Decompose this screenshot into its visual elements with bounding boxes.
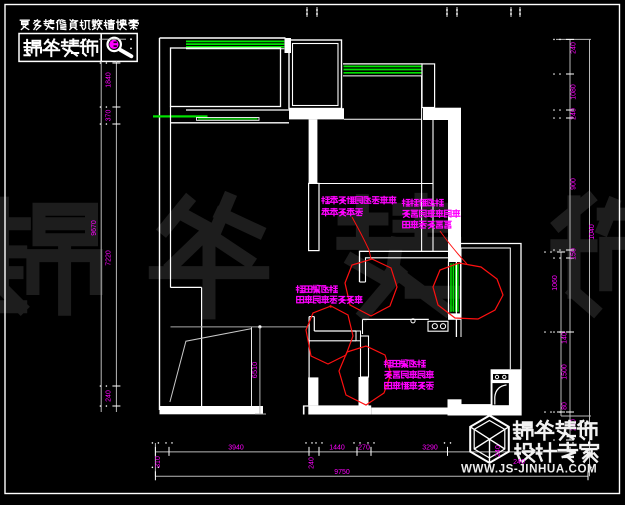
svg-text:3290: 3290 (422, 445, 438, 452)
svg-text:140: 140 (562, 332, 569, 344)
svg-text:1500: 1500 (562, 364, 569, 380)
svg-text:900: 900 (571, 178, 578, 190)
svg-text:150: 150 (571, 248, 578, 260)
svg-text:80: 80 (562, 402, 569, 410)
svg-text:240: 240 (571, 42, 578, 54)
svg-text:WWW.JS-JINHUA.COM: WWW.JS-JINHUA.COM (461, 463, 597, 476)
svg-text:240: 240 (495, 445, 502, 457)
svg-text:1440: 1440 (329, 445, 345, 452)
svg-text:1080: 1080 (571, 84, 578, 100)
svg-text:240: 240 (106, 390, 113, 402)
svg-text:7220: 7220 (106, 250, 113, 266)
svg-text:370: 370 (106, 110, 113, 122)
svg-text:1060: 1060 (552, 275, 559, 291)
svg-text:1040: 1040 (589, 224, 596, 240)
svg-text:1840: 1840 (106, 72, 113, 88)
svg-text:240: 240 (571, 108, 578, 120)
svg-text:3940: 3940 (228, 445, 244, 452)
svg-text:240: 240 (513, 459, 525, 466)
svg-text:310: 310 (155, 456, 162, 468)
svg-text:270: 270 (358, 445, 370, 452)
svg-text:240: 240 (309, 457, 316, 469)
svg-text:6510: 6510 (250, 362, 259, 379)
svg-text:9750: 9750 (334, 469, 350, 476)
svg-text:9670: 9670 (91, 220, 98, 236)
